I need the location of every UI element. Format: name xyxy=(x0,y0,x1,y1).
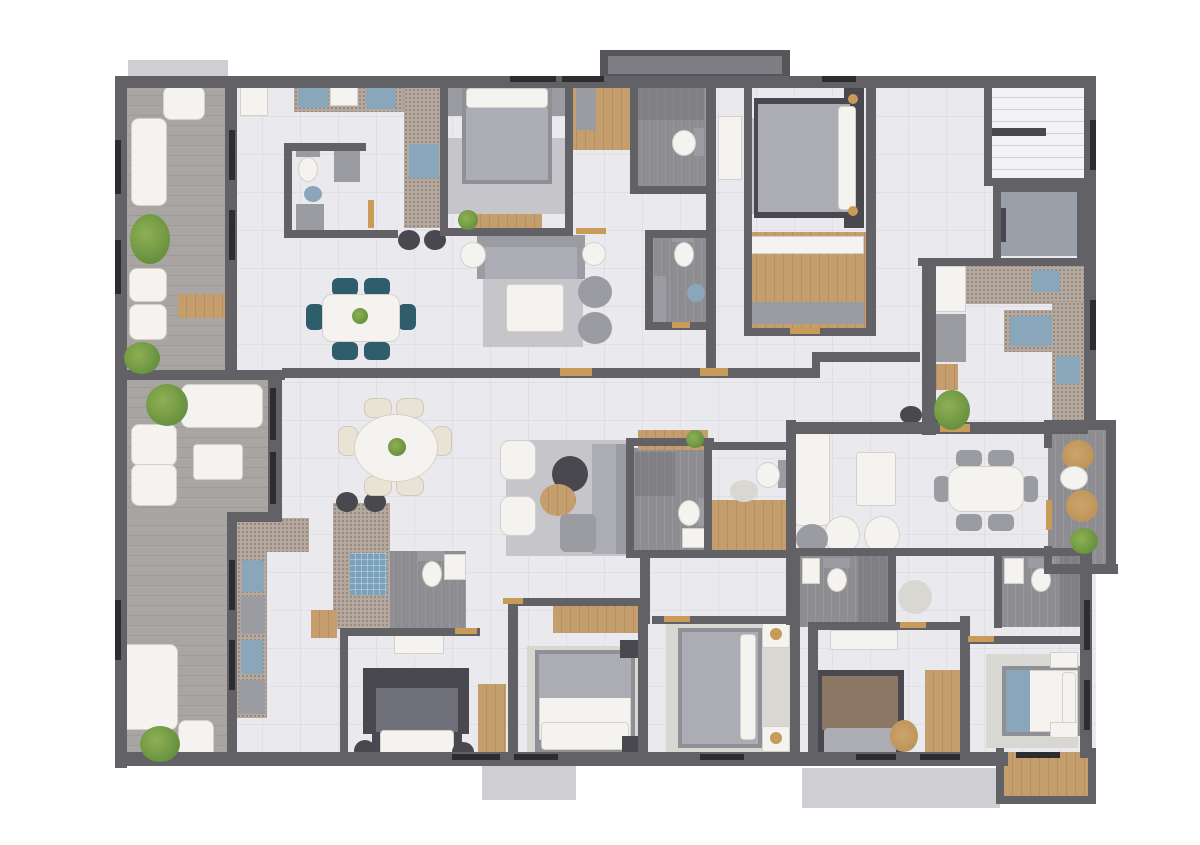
c1-shower-zone xyxy=(858,556,888,626)
a-coffee-table xyxy=(506,284,564,332)
door-bath-a2 xyxy=(672,322,690,328)
wall-bath-a2-left xyxy=(645,230,653,330)
c-balcony-table xyxy=(1060,466,1088,490)
laundry-cabinet xyxy=(718,116,742,180)
plant-dining-a xyxy=(352,308,368,324)
terrace-bench xyxy=(178,294,230,318)
wall-balcony-bottom xyxy=(1044,564,1118,574)
d-chaise xyxy=(560,514,596,552)
wall-balcony-right xyxy=(1106,420,1116,574)
d1-sink xyxy=(682,528,706,548)
a-bath-sink xyxy=(304,186,322,202)
d-oven xyxy=(241,596,265,634)
door-bed-m xyxy=(664,616,690,622)
terrace-armchair-1 xyxy=(163,86,205,120)
c-side-table xyxy=(856,452,896,506)
a2-sink xyxy=(687,284,705,302)
window-right-3 xyxy=(1084,600,1090,650)
wall-bed-l1-left xyxy=(340,628,348,754)
wall-deck-bottom xyxy=(996,796,1096,804)
wall-bedroom-a-left xyxy=(440,84,448,236)
d-armchair-2 xyxy=(500,496,536,536)
roof-top-bump-inner xyxy=(608,56,782,74)
b-lamp-1 xyxy=(848,94,858,104)
wall-corridor-right xyxy=(812,352,920,362)
r1-bench xyxy=(830,630,898,650)
plant-terrace-1 xyxy=(130,214,170,264)
balcony-slab-right xyxy=(802,768,1000,808)
d-wood-table xyxy=(540,484,576,516)
c-dining-chair-e xyxy=(1022,476,1038,502)
c-sofa xyxy=(794,428,830,526)
window-bottom-5 xyxy=(920,754,960,760)
wall-core-d-left xyxy=(626,438,634,558)
wall-bed-r1-top xyxy=(808,622,968,630)
terrace-armchair-3 xyxy=(129,304,167,340)
plant-terrace-3 xyxy=(146,384,188,426)
wall-bath-a2-top xyxy=(645,230,715,238)
a-sofa-seat xyxy=(481,247,577,279)
wall-bath-a-bottom xyxy=(284,230,398,238)
window-left-1 xyxy=(115,140,121,194)
window-deck xyxy=(1016,752,1060,758)
stair-railing xyxy=(990,128,1046,136)
window-bottom-2 xyxy=(514,754,558,760)
plant-balcony-c xyxy=(1070,528,1098,554)
window-terrace-4 xyxy=(270,452,276,504)
wall-top xyxy=(115,76,1096,88)
a-armchair-2 xyxy=(578,312,612,344)
terrace-sofa-1 xyxy=(131,118,167,206)
a-sofa-back xyxy=(481,235,577,247)
a-armchair-1 xyxy=(578,276,612,308)
a-cooktop xyxy=(409,144,439,178)
wall-bath-a-left xyxy=(284,143,292,238)
a-kitchen-sink-1 xyxy=(298,87,328,108)
terrace-armchair-4 xyxy=(131,424,177,466)
c1-toilet-tank xyxy=(824,558,850,568)
a-dining-chair-s2 xyxy=(364,342,390,360)
a2-toilet xyxy=(674,242,694,267)
elevator-door xyxy=(1001,208,1006,242)
c-kitchen-sink-2 xyxy=(1056,356,1080,384)
d-kitchen-sink-2 xyxy=(241,640,263,674)
l2-nightstand-1 xyxy=(620,640,638,658)
r1-wicker-basket xyxy=(890,720,918,752)
c1-toilet xyxy=(827,568,847,592)
door-bath-a xyxy=(368,200,374,228)
m-lamp-1 xyxy=(770,628,782,640)
terrace-sofa-3 xyxy=(118,644,178,730)
wall-bath-c1-right xyxy=(888,548,896,628)
r2-bed-pillows xyxy=(1062,672,1076,728)
d-armchair-1 xyxy=(500,440,536,480)
c-cooktop xyxy=(1010,316,1052,346)
wall-corridor xyxy=(282,368,820,378)
round-rug-hall-c xyxy=(898,580,932,614)
window-left-3 xyxy=(115,600,121,660)
deck-bottom-right xyxy=(1004,752,1088,798)
wall-balcony-pier-1 xyxy=(1044,420,1052,448)
window-top-3 xyxy=(822,76,856,82)
closet-d-floor xyxy=(710,500,788,554)
kitchen-c-counter-top xyxy=(966,264,1084,304)
c1-sink xyxy=(802,558,820,584)
plant-terrace-4 xyxy=(140,726,180,762)
e-toilet xyxy=(422,561,442,587)
a-bed-pillows xyxy=(466,88,548,108)
terrace-armchair-2 xyxy=(129,268,167,302)
c-kitchen-sink-1 xyxy=(1032,270,1060,292)
b-bed-duvet xyxy=(758,104,850,212)
wall-bedroom-b-right xyxy=(866,84,876,336)
wall-bedroom-b-left xyxy=(744,84,752,336)
door-bed-l2 xyxy=(503,598,523,604)
a-corner-cabinet xyxy=(240,86,268,116)
d-washer xyxy=(239,680,265,714)
e-toilet-tank xyxy=(418,551,444,561)
d-barstool-1 xyxy=(336,492,358,512)
window-right-4 xyxy=(1084,680,1090,730)
wall-terrace-inner-bottom xyxy=(227,512,237,762)
a-barstool-1 xyxy=(398,230,420,250)
elevator-floor xyxy=(1001,192,1077,256)
c-dining-chair-s2 xyxy=(988,514,1014,531)
terrace-coffee-table xyxy=(193,444,243,480)
plant-kitchen-c xyxy=(934,390,970,430)
door-corridor-1 xyxy=(560,368,592,376)
r2-nightstand-2 xyxy=(1050,722,1078,738)
door-closet-b xyxy=(790,328,820,334)
l1-bench xyxy=(394,634,444,654)
plant-dining-d xyxy=(388,438,406,456)
wall-bed-l2-top xyxy=(508,598,646,606)
window-bottom-3 xyxy=(700,754,744,760)
window-terrace-6 xyxy=(229,640,235,690)
l1-bed-duvet xyxy=(376,688,458,732)
kitchen-d-woodbox xyxy=(311,610,337,638)
c-dining-table xyxy=(948,466,1024,512)
window-terrace-3 xyxy=(270,388,276,440)
c2-sink xyxy=(1004,558,1024,584)
l2-bed-pillows xyxy=(541,722,629,750)
a-dining-chair-e xyxy=(398,304,416,330)
d1-toilet xyxy=(678,500,700,526)
plant-shelf-a xyxy=(458,210,478,230)
wall-elevator-right xyxy=(1077,184,1085,266)
l2-bed-plaid xyxy=(539,654,631,698)
wall-kitchen-c-top xyxy=(918,258,1088,266)
window-left-2 xyxy=(115,240,121,294)
r1-bed-duvet xyxy=(822,676,898,730)
c-wicker-chair-2 xyxy=(1066,490,1098,522)
wall-bed-r1-left xyxy=(808,622,818,754)
wall-bed-l2-right xyxy=(638,598,648,754)
a-dishwasher xyxy=(330,86,358,106)
wall-balcony-pier-2 xyxy=(1044,546,1052,574)
a-washer xyxy=(296,204,324,230)
b-lamp-2 xyxy=(848,206,858,216)
a-side-table-2 xyxy=(582,242,606,266)
round-rug-bath-d2 xyxy=(730,480,758,502)
floor-plan-render xyxy=(0,0,1200,845)
door-bed-r2 xyxy=(968,636,994,642)
shower-e-mosaic xyxy=(350,553,387,595)
d2-toilet xyxy=(756,462,780,488)
window-top-2 xyxy=(562,76,604,82)
door-bedroom-a xyxy=(576,228,606,234)
wall-bedroom-a-bottom xyxy=(440,228,573,236)
b-bed-pillows xyxy=(838,106,856,210)
c-dining-chair-n2 xyxy=(988,450,1014,467)
window-terrace-5 xyxy=(229,560,235,610)
door-bed-r1 xyxy=(900,622,926,628)
door-bed-l1 xyxy=(455,628,477,634)
e-sink xyxy=(444,554,466,580)
window-right-2 xyxy=(1090,300,1096,350)
wall-core-d-mid xyxy=(704,442,712,558)
a-toilet xyxy=(298,157,318,182)
a-side-table-1 xyxy=(460,242,486,268)
wall-bath-a1-left xyxy=(630,84,638,194)
wall-bed-m-right xyxy=(790,616,800,754)
c-wicker-chair-1 xyxy=(1062,440,1094,470)
a-closet-bench xyxy=(576,88,596,130)
c-dining-chair-n1 xyxy=(956,450,982,467)
wall-bath-a1-bottom xyxy=(630,186,708,194)
wall-bed-l1-l2-div xyxy=(508,600,518,754)
wall-closet-a-left xyxy=(565,84,573,234)
door-balcony-c xyxy=(1046,500,1052,530)
m-bed-pillows xyxy=(740,634,756,740)
a-bath-vanity xyxy=(334,146,360,182)
b-closet-rod xyxy=(750,236,864,254)
c-dining-chair-s1 xyxy=(956,514,982,531)
wall-stairs-left xyxy=(984,84,992,186)
window-bottom-1 xyxy=(452,754,500,760)
wardrobe-l2 xyxy=(553,605,639,633)
wall-unit-ab-divider xyxy=(706,84,716,376)
plant-terrace-2 xyxy=(124,342,160,374)
wall-elevator-left xyxy=(993,184,1001,266)
terrace-sofa-2 xyxy=(181,384,263,428)
window-right-1 xyxy=(1090,120,1096,170)
balcony-slab-center xyxy=(482,764,576,800)
a-dining-chair-s1 xyxy=(332,342,358,360)
d1-shower-zone xyxy=(635,452,675,496)
a-bed-duvet xyxy=(466,108,548,180)
m-lamp-2 xyxy=(770,732,782,744)
wall-core-d2-top xyxy=(706,442,794,450)
r2-nightstand-1 xyxy=(1050,652,1078,668)
dresser-r1 xyxy=(925,670,961,764)
a-kitchen-sink-2 xyxy=(366,88,396,109)
wall-bath-a-top xyxy=(284,143,366,151)
a1-toilet xyxy=(672,130,696,156)
wall-bath-c2-left xyxy=(994,548,1002,628)
a1-shower-zone xyxy=(638,86,704,120)
plant-vanity-d xyxy=(686,430,704,448)
kitchen-d-counter-top xyxy=(237,518,309,552)
window-bottom-4 xyxy=(856,754,896,760)
window-terrace-1 xyxy=(229,130,235,180)
r2-blue-runner xyxy=(1006,670,1030,732)
wall-core-d-bottom xyxy=(626,550,794,558)
terrace-armchair-5 xyxy=(131,464,177,506)
window-terrace-2 xyxy=(229,210,235,260)
b-closet-shelf xyxy=(750,302,864,324)
wall-elevator-top xyxy=(993,184,1088,192)
d-kitchen-sink-1 xyxy=(242,560,264,592)
door-corridor-2 xyxy=(700,368,728,376)
window-top-1 xyxy=(510,76,556,82)
